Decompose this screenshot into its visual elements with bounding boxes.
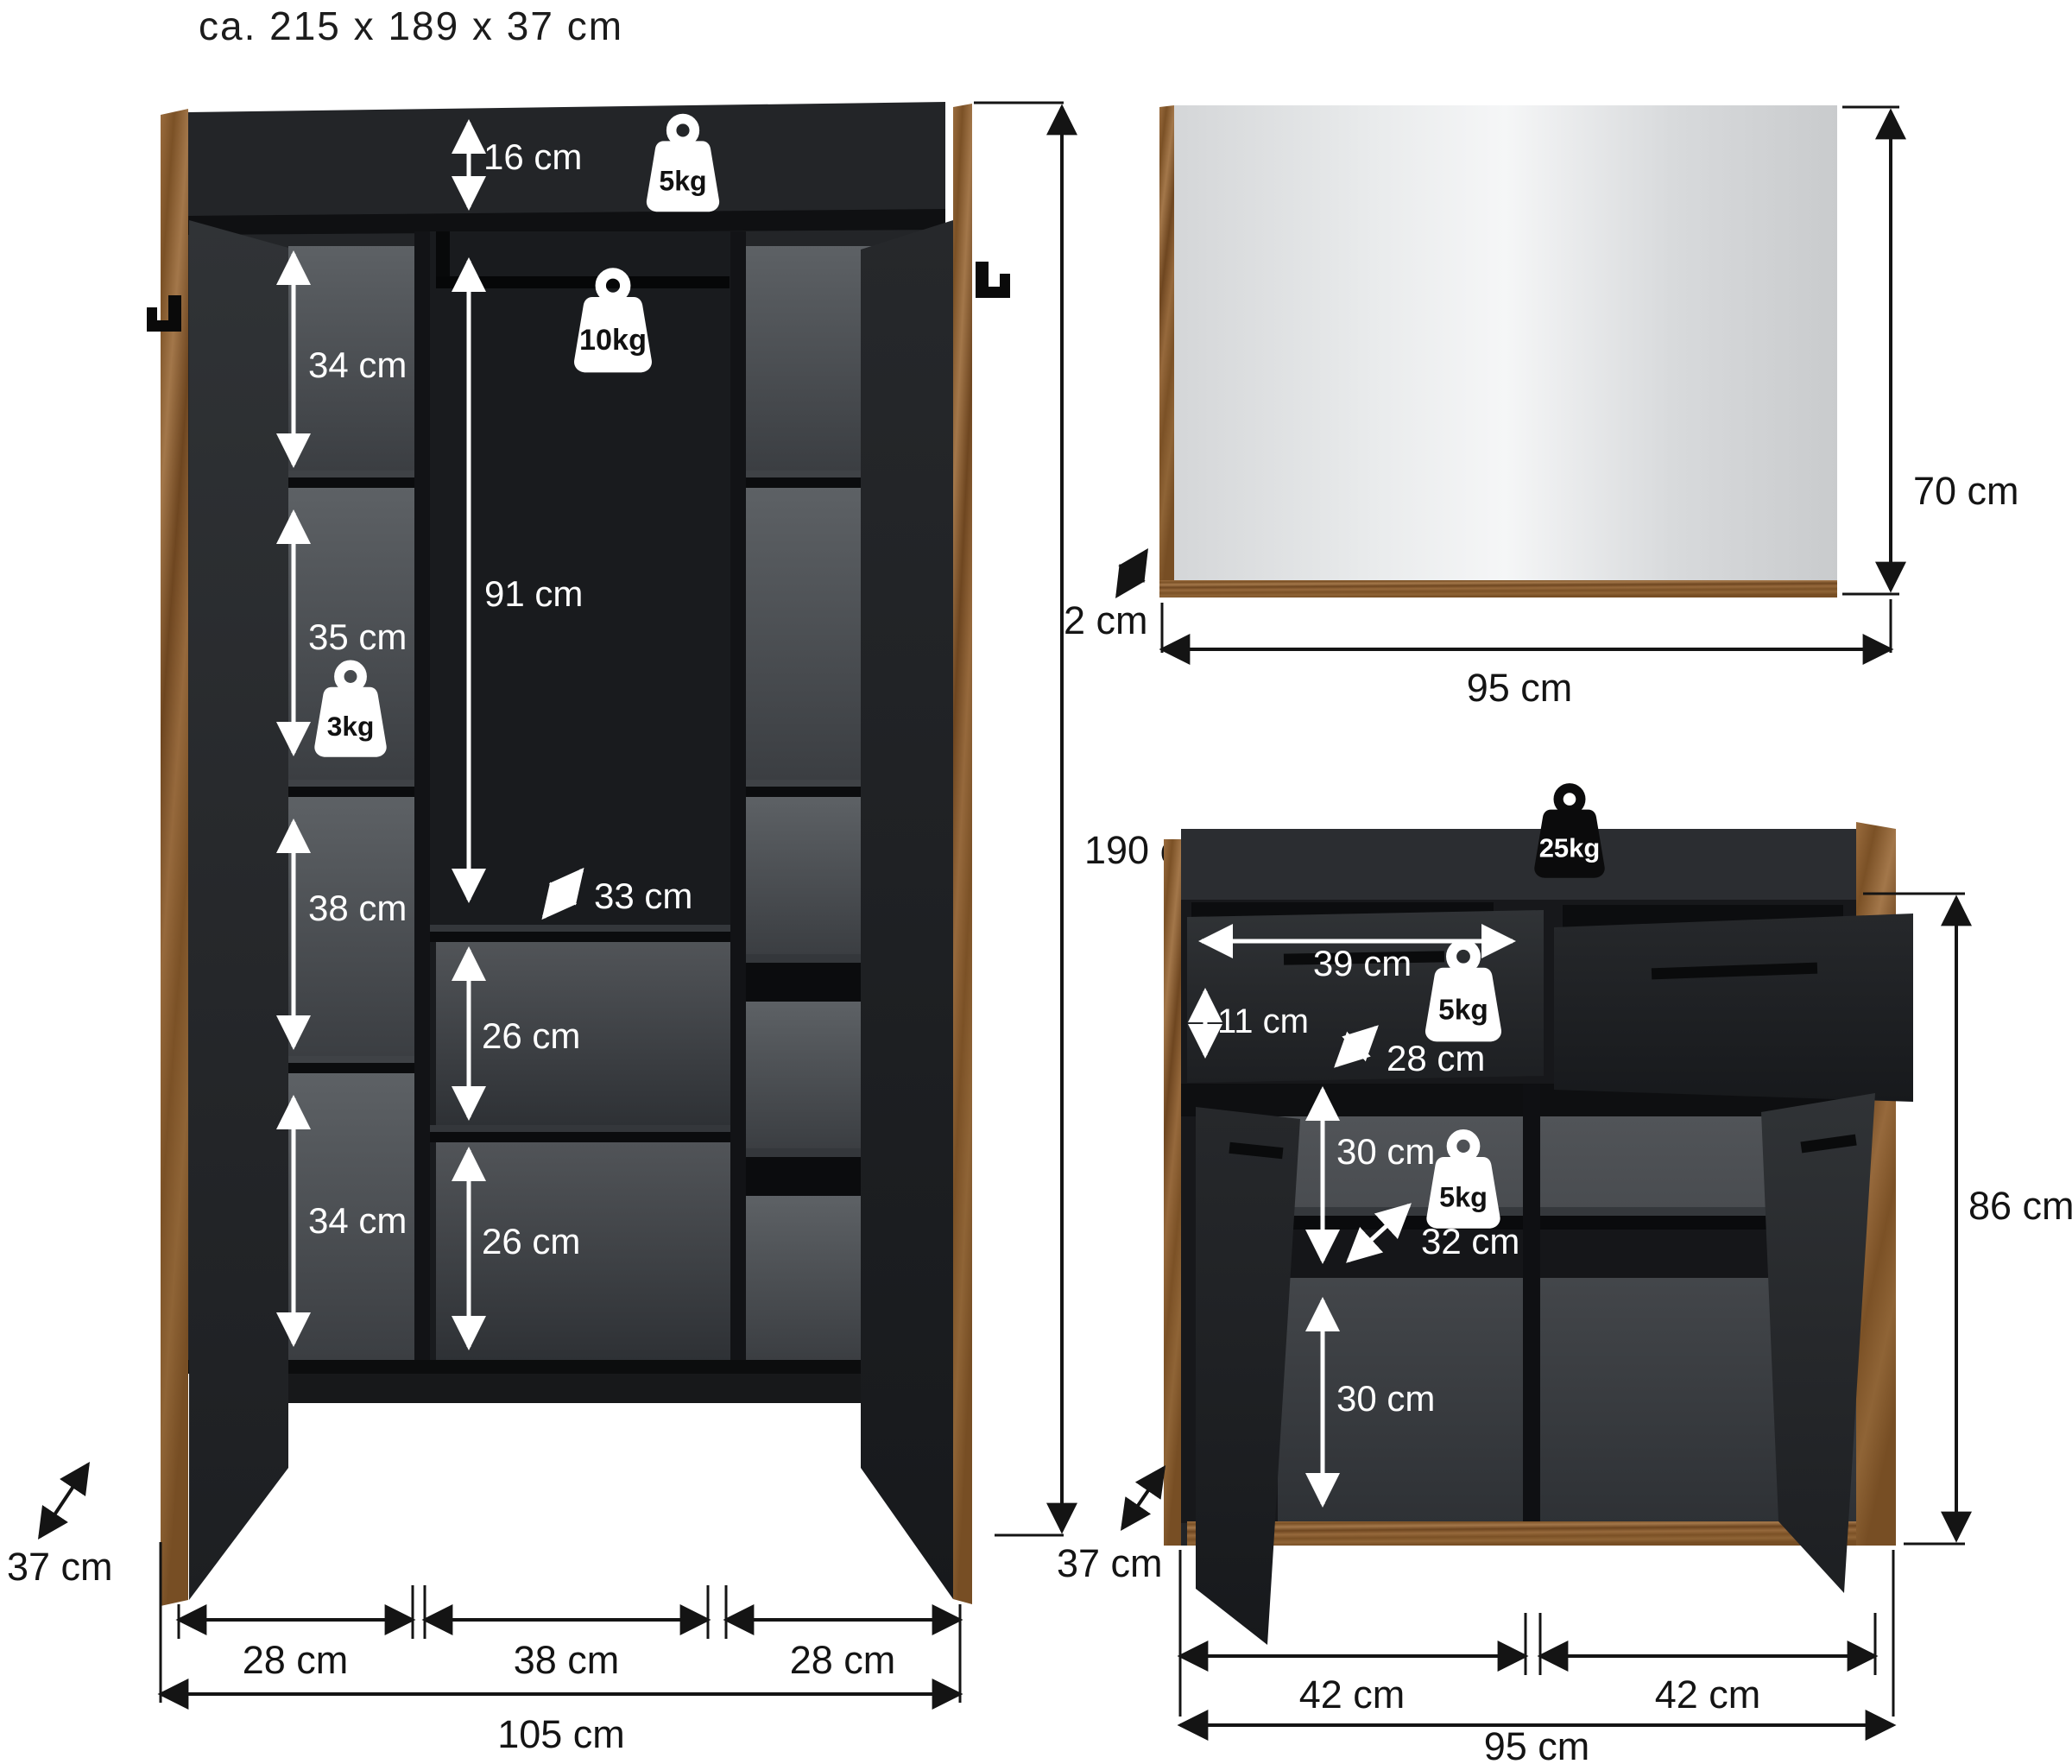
- weight-badge-25kg-label: 25kg: [1539, 833, 1601, 863]
- sideboard-divider: [1523, 1084, 1540, 1523]
- dim-compartment-depth: 32 cm: [1421, 1221, 1519, 1261]
- dim-sideboard-total-width: 95 cm: [1484, 1724, 1590, 1764]
- dim-wardrobe-bottom-left: 28 cm: [243, 1638, 349, 1682]
- sideboard-plinth: [1187, 1521, 1856, 1546]
- wardrobe-divider-left: [414, 231, 430, 1360]
- dim-left-shelf-1: 34 cm: [308, 345, 407, 385]
- wardrobe-right-door: [861, 220, 953, 1599]
- sideboard-top-panel: [1181, 829, 1856, 900]
- page-title: ca. 215 x 189 x 37 cm: [199, 3, 623, 48]
- wardrobe-left-door: [189, 220, 288, 1600]
- dim-mirror-width: 95 cm: [1467, 666, 1573, 710]
- dim-sideboard-bottom-left: 42 cm: [1299, 1672, 1406, 1717]
- weight-badge-3kg-label: 3kg: [327, 711, 375, 742]
- mirror-surface: [1174, 105, 1837, 580]
- weight-badge-5kg-shelf-label: 5kg: [1439, 1182, 1488, 1213]
- dim-wardrobe-bottom-right: 28 cm: [790, 1638, 896, 1682]
- dim-wardrobe-total-width: 105 cm: [497, 1712, 625, 1756]
- weight-badge-25kg-icon: 25kg: [1534, 788, 1604, 878]
- dim-hanging-height: 91 cm: [484, 573, 583, 614]
- dim-mirror-height: 70 cm: [1913, 469, 2019, 513]
- weight-badge-5kg-top-label: 5kg: [659, 165, 706, 196]
- wardrobe: 16 cm 34 cm 35 cm 38 cm 34 cm 91 cm 33 c…: [7, 102, 1212, 1756]
- wardrobe-left-wood-edge: [161, 109, 188, 1606]
- dim-mirror-depth: 2 cm: [1064, 598, 1148, 642]
- mirror: 70 cm 95 cm 2 cm: [1064, 105, 2019, 710]
- dim-left-shelf-4: 34 cm: [308, 1200, 407, 1241]
- dim-top-clearance: 16 cm: [483, 136, 582, 177]
- dim-wardrobe-bottom-mid: 38 cm: [514, 1638, 620, 1682]
- dim-left-shelf-3: 38 cm: [308, 888, 407, 928]
- weight-badge-10kg-label: 10kg: [579, 324, 647, 357]
- mirror-left-wood-edge: [1159, 105, 1174, 584]
- hanging-rod-bracket: [436, 231, 450, 281]
- wardrobe-right-wood-edge: [953, 104, 972, 1604]
- dim-left-shelf-2: 35 cm: [308, 616, 407, 657]
- sideboard: 25kg 5kg 5kg 39 cm 11 cm 28 cm 30 cm 32 …: [1057, 788, 2072, 1764]
- coat-hook-right-icon: [976, 262, 1010, 298]
- wardrobe-divider-right: [730, 231, 746, 1360]
- sideboard-left-wood-edge: [1164, 839, 1181, 1546]
- wardrobe-plinth: [224, 1374, 881, 1403]
- wardrobe-floor: [188, 1360, 945, 1374]
- dim-sideboard-depth: 37 cm: [1057, 1541, 1163, 1585]
- hanging-rod: [436, 276, 730, 288]
- dim-hanging-depth: 33 cm: [594, 876, 692, 916]
- wardrobe-middle-column: [430, 231, 730, 1360]
- dim-drawer-depth: 28 cm: [1387, 1038, 1485, 1078]
- dim-drawer-height: 11 cm: [1217, 1002, 1309, 1040]
- furniture-dimension-diagram: ca. 215 x 189 x 37 cm: [0, 0, 2072, 1764]
- wardrobe-left-column: [288, 246, 414, 1360]
- dim-sideboard-height: 86 cm: [1968, 1184, 2072, 1228]
- dim-compartment-2: 30 cm: [1336, 1378, 1435, 1419]
- dim-sideboard-bottom-right: 42 cm: [1655, 1672, 1761, 1717]
- sideboard-right-drawer: [1554, 914, 1913, 1102]
- weight-badge-5kg-drawer-label: 5kg: [1438, 994, 1488, 1026]
- dim-wardrobe-depth: 37 cm: [7, 1545, 113, 1589]
- sideboard-bottom-ticks: [1180, 1550, 1893, 1717]
- mirror-bottom-wood-edge: [1159, 580, 1837, 597]
- dim-mid-shelf-1: 26 cm: [482, 1015, 580, 1056]
- dim-drawer-width: 39 cm: [1313, 943, 1412, 983]
- dim-compartment-1: 30 cm: [1336, 1131, 1435, 1172]
- dim-mid-shelf-2: 26 cm: [482, 1221, 580, 1261]
